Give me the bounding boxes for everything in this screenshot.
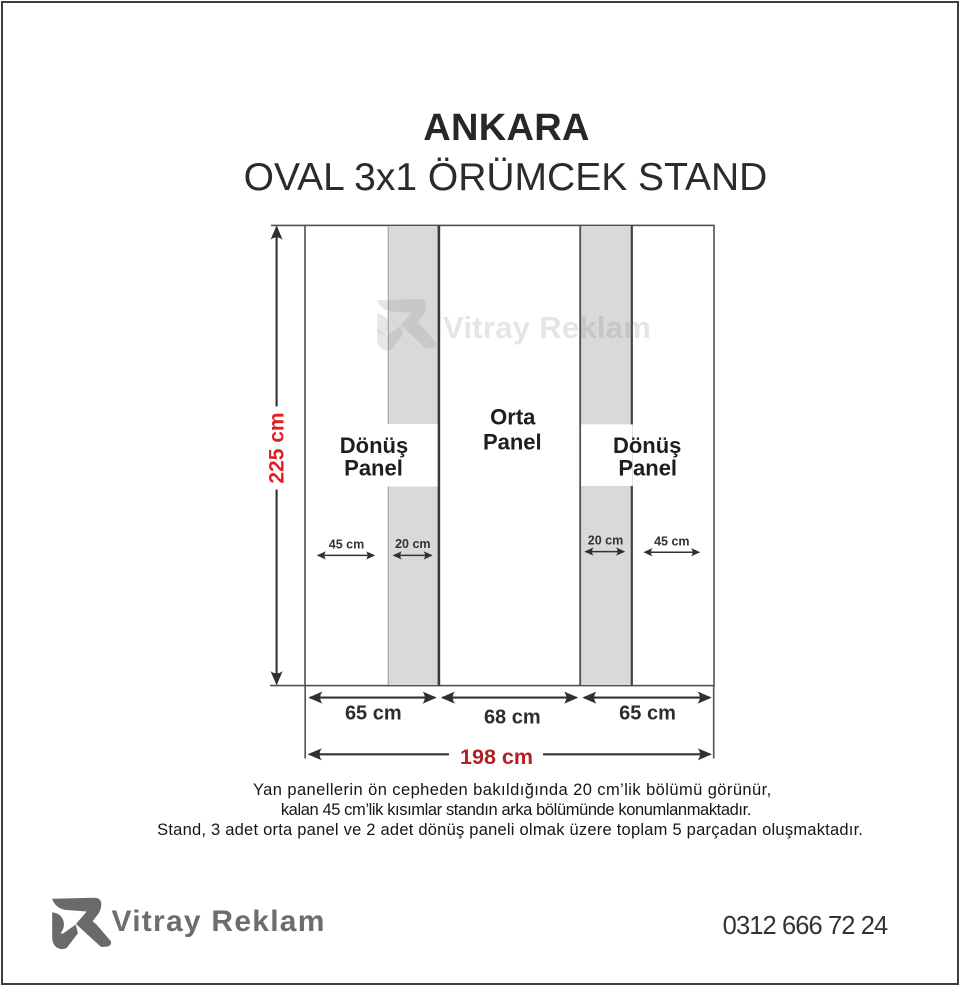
svg-text:45 cm: 45 cm: [654, 535, 689, 549]
svg-text:Panel: Panel: [483, 430, 542, 455]
svg-text:198 cm: 198 cm: [460, 745, 533, 769]
svg-text:Dönüş: Dönüş: [340, 433, 408, 458]
svg-text:65 cm: 65 cm: [345, 703, 402, 725]
svg-text:Panel: Panel: [344, 456, 403, 481]
svg-text:65 cm: 65 cm: [619, 703, 676, 725]
svg-text:20 cm: 20 cm: [395, 537, 430, 551]
svg-text:20 cm: 20 cm: [588, 534, 623, 548]
svg-text:Orta: Orta: [490, 405, 536, 430]
svg-text:68 cm: 68 cm: [484, 707, 541, 729]
svg-text:Vitray Reklam: Vitray Reklam: [443, 310, 651, 345]
svg-text:45 cm: 45 cm: [329, 538, 364, 552]
svg-text:225 cm: 225 cm: [266, 412, 289, 483]
svg-text:Panel: Panel: [618, 456, 677, 481]
svg-text:Dönüş: Dönüş: [613, 433, 681, 458]
